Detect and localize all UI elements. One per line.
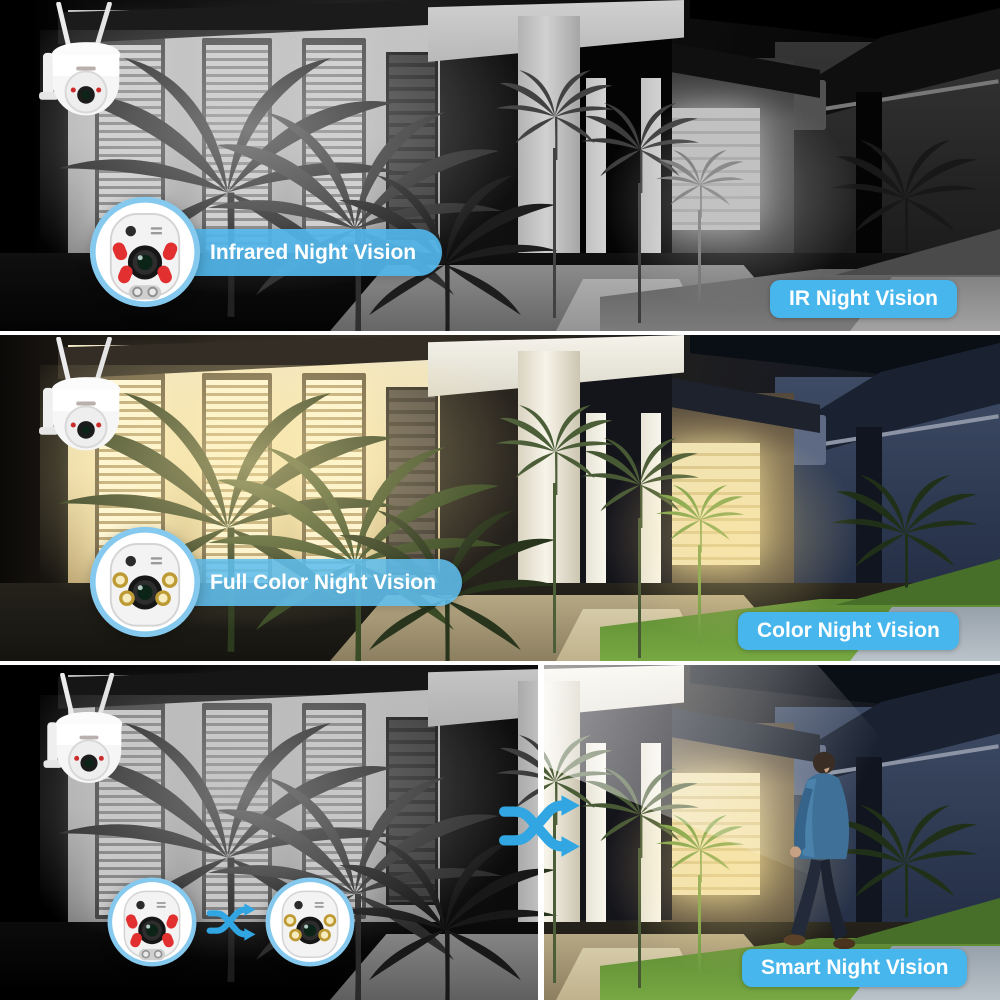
night-vision-comparison-image: Infrared Night Vision IR Night Vision — [0, 0, 1000, 1000]
swap-arrows-icon — [206, 901, 258, 943]
ir-badge-text: IR Night Vision — [789, 287, 938, 310]
palm-plant-icon — [544, 840, 560, 1000]
ir-lens-circle-icon — [106, 876, 198, 968]
palm-tree-icon — [655, 485, 745, 557]
ptz-camera-icon — [30, 673, 148, 801]
palm-plant-icon — [330, 840, 538, 1000]
full-color-mode-label-text: Full Color Night Vision — [210, 571, 436, 595]
panel-ir-night-vision: Infrared Night Vision IR Night Vision — [0, 0, 1000, 331]
color-badge: Color Night Vision — [738, 612, 959, 650]
ir-badge: IR Night Vision — [770, 280, 957, 318]
palm-tree-icon — [655, 150, 745, 222]
palm-tree-icon — [655, 815, 745, 887]
color-lens-circle-icon — [264, 876, 356, 968]
ptz-camera-icon — [25, 337, 147, 469]
palm-plant-icon — [830, 475, 980, 595]
panel-smart-night-vision: Smart Night Vision — [0, 665, 1000, 1000]
swap-arrows-icon — [498, 791, 584, 861]
ir-lens-circle-icon — [88, 195, 202, 309]
walking-person — [778, 749, 870, 951]
smart-badge: Smart Night Vision — [742, 949, 967, 987]
panel-color-night-vision: Full Color Night Vision Color Night Visi… — [0, 335, 1000, 661]
palm-plant-icon — [830, 140, 980, 260]
ir-mode-label-text: Infrared Night Vision — [210, 241, 416, 265]
smart-badge-text: Smart Night Vision — [761, 956, 948, 979]
ptz-camera-icon — [25, 2, 147, 134]
color-lens-circle-icon — [88, 525, 202, 639]
color-badge-text: Color Night Vision — [757, 619, 940, 642]
